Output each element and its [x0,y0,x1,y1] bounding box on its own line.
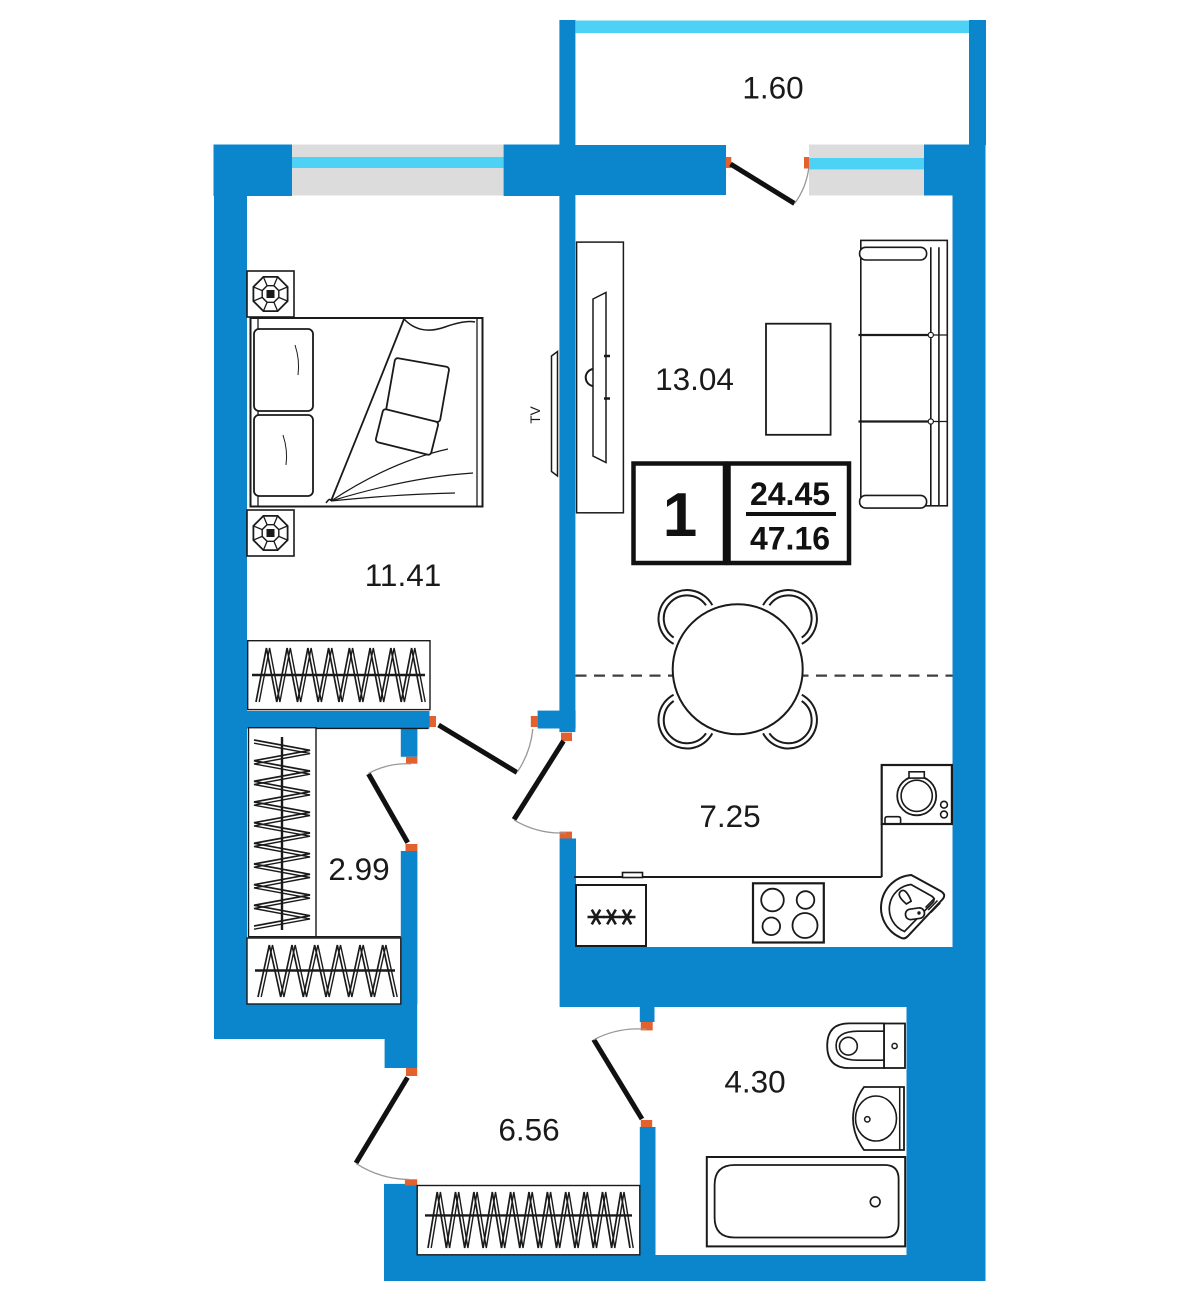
svg-text:TV: TV [528,406,543,423]
svg-text:24.45: 24.45 [750,476,830,512]
svg-text:1: 1 [663,481,697,550]
svg-text:11.41: 11.41 [365,557,442,593]
svg-text:4.30: 4.30 [724,1064,785,1100]
svg-text:1.60: 1.60 [742,70,803,106]
svg-text:6.56: 6.56 [498,1112,559,1148]
svg-text:2.99: 2.99 [328,851,389,887]
svg-text:47.16: 47.16 [750,521,830,557]
svg-text:7.25: 7.25 [699,798,760,834]
svg-text:13.04: 13.04 [655,361,734,397]
